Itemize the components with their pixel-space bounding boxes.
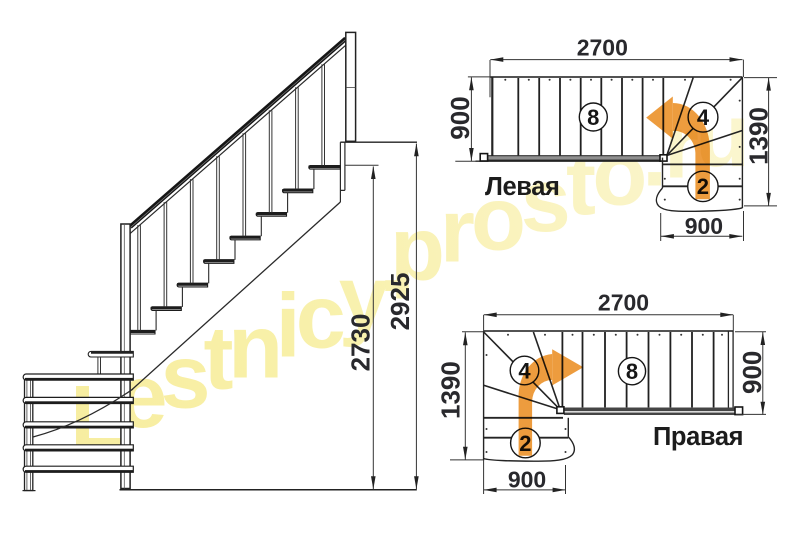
svg-text:1390: 1390 xyxy=(743,107,773,165)
svg-text:1390: 1390 xyxy=(435,361,465,419)
svg-text:900: 900 xyxy=(445,96,475,139)
svg-text:8: 8 xyxy=(626,359,638,384)
svg-text:2925: 2925 xyxy=(385,273,415,331)
svg-text:2700: 2700 xyxy=(598,289,649,315)
svg-text:900: 900 xyxy=(508,466,546,492)
svg-text:8: 8 xyxy=(587,105,599,130)
svg-text:900: 900 xyxy=(737,351,767,394)
svg-text:Левая: Левая xyxy=(485,173,559,201)
svg-text:2700: 2700 xyxy=(577,35,628,61)
svg-text:Правая: Правая xyxy=(653,423,743,451)
svg-text:900: 900 xyxy=(685,213,723,239)
svg-text:2730: 2730 xyxy=(346,314,376,372)
